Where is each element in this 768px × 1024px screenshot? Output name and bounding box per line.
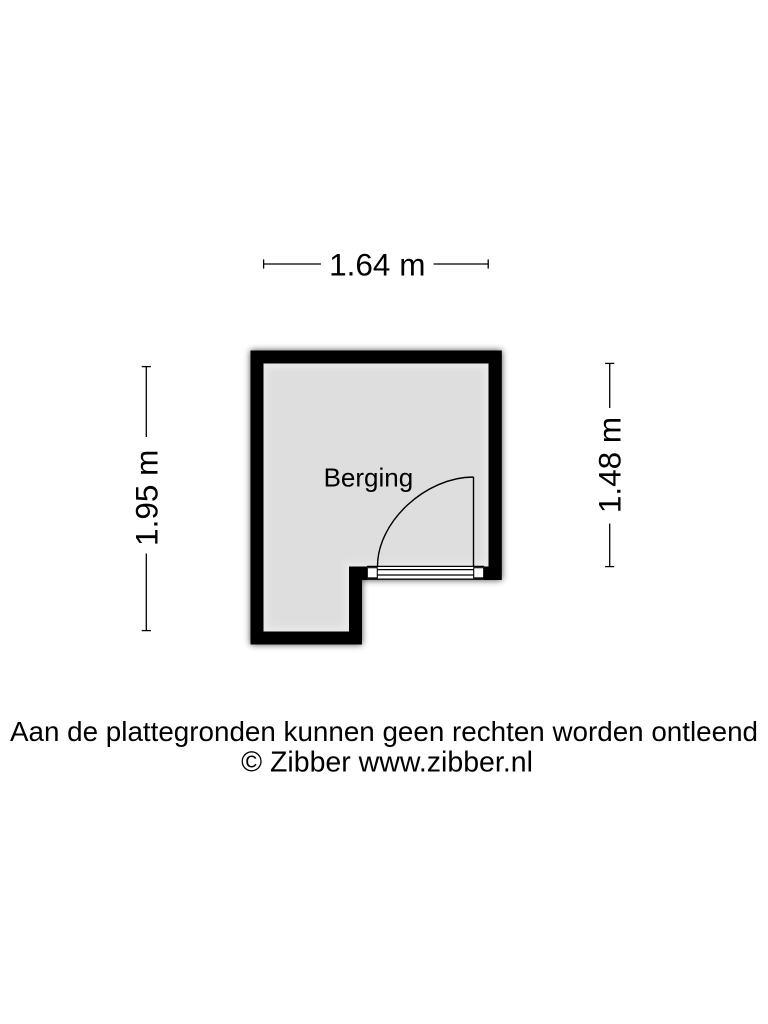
svg-text:Berging: Berging xyxy=(324,463,414,493)
svg-text:Aan de plattegronden kunnen ge: Aan de plattegronden kunnen geen rechten… xyxy=(10,716,758,747)
svg-text:© Zibber www.zibber.nl: © Zibber www.zibber.nl xyxy=(241,747,533,779)
svg-text:1.64 m: 1.64 m xyxy=(329,246,425,282)
svg-text:1.95 m: 1.95 m xyxy=(128,450,164,546)
svg-text:1.48 m: 1.48 m xyxy=(592,417,628,513)
